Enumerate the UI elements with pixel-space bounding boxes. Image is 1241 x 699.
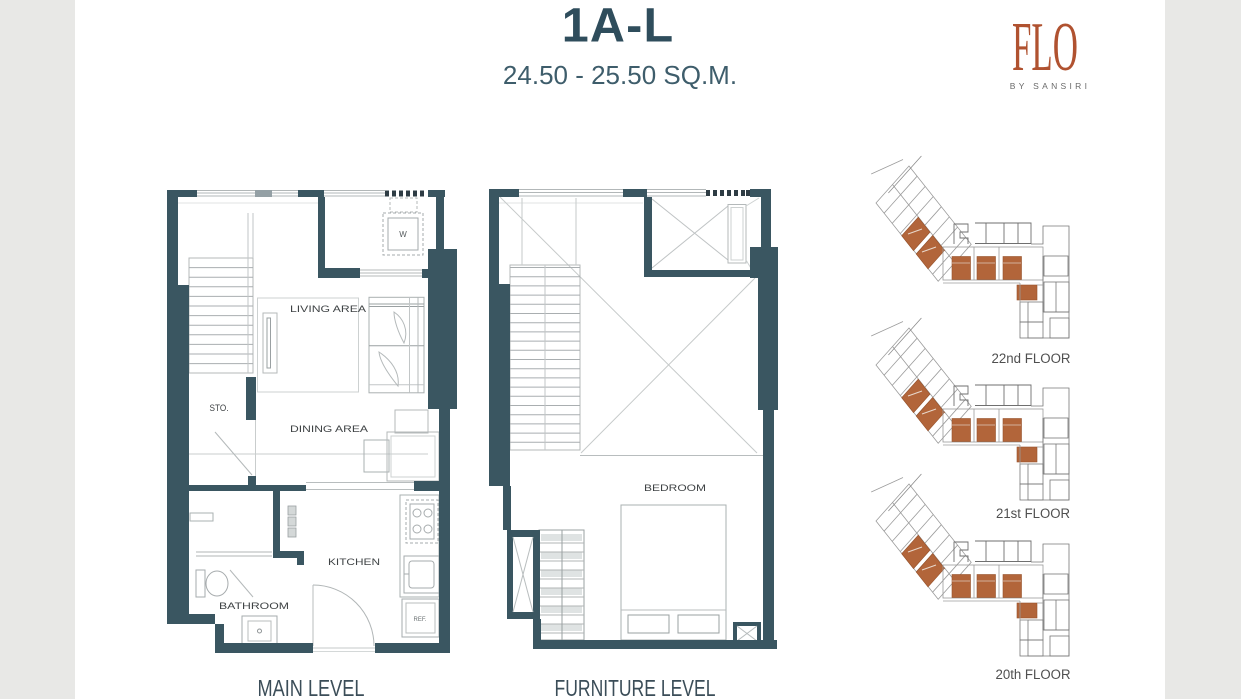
svg-text:21st FLOOR: 21st FLOOR: [996, 506, 1070, 521]
svg-text:KITCHEN: KITCHEN: [328, 557, 380, 568]
svg-text:BEDROOM: BEDROOM: [644, 483, 706, 494]
svg-text:24.50 - 25.50 SQ.M.: 24.50 - 25.50 SQ.M.: [503, 60, 737, 90]
svg-text:22nd FLOOR: 22nd FLOOR: [992, 351, 1071, 366]
svg-text:REF.: REF.: [413, 617, 426, 623]
svg-text:FURNITURE LEVEL: FURNITURE LEVEL: [555, 675, 716, 699]
svg-text:W: W: [399, 230, 407, 239]
svg-text:FLO: FLO: [1012, 9, 1078, 86]
svg-text:STO.: STO.: [210, 403, 229, 413]
svg-text:LIVING AREA: LIVING AREA: [290, 304, 367, 315]
svg-text:1A-L: 1A-L: [562, 0, 675, 53]
svg-text:20th FLOOR: 20th FLOOR: [996, 667, 1071, 682]
svg-text:BY SANSIRI: BY SANSIRI: [1010, 81, 1091, 91]
svg-text:MAIN LEVEL: MAIN LEVEL: [258, 675, 365, 699]
svg-text:DINING AREA: DINING AREA: [290, 424, 369, 435]
svg-text:BATHROOM: BATHROOM: [219, 601, 289, 612]
